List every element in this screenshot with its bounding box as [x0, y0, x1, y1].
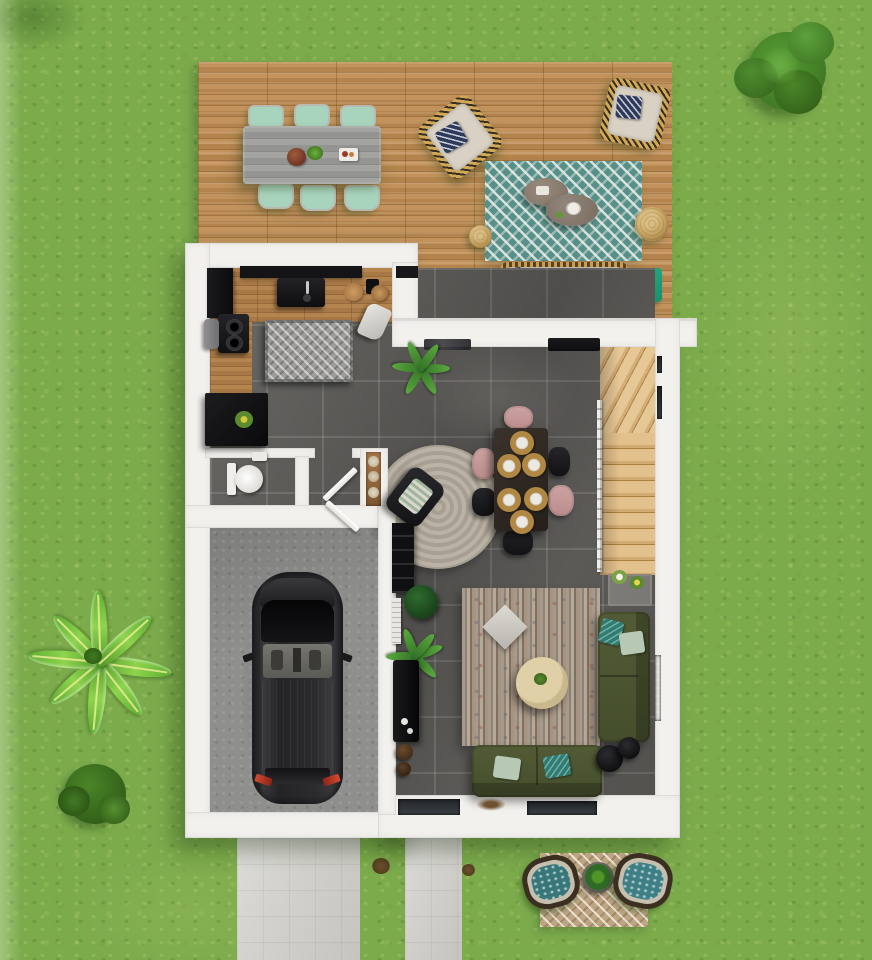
- cushion-divider: [600, 675, 638, 677]
- dining-chair-pink: [472, 448, 496, 479]
- table-deco-tray: [536, 186, 549, 195]
- round-tree: [730, 18, 848, 136]
- interior-potted-plant: [396, 346, 442, 392]
- black-side-table: [618, 737, 640, 759]
- place-setting: [522, 453, 546, 477]
- car: [252, 572, 343, 804]
- cutting-board: [344, 283, 363, 301]
- wall-top-left: [185, 243, 418, 268]
- round-coffee-table: [516, 657, 568, 709]
- black-bookshelf: [392, 523, 414, 593]
- stair-window: [657, 386, 662, 419]
- hand-basin: [252, 452, 267, 461]
- driveway: [237, 838, 360, 960]
- car-seat: [309, 650, 321, 670]
- jute-pouf-large: [635, 207, 669, 241]
- car-rear-window: [265, 768, 330, 784]
- dining-chair-pink: [504, 406, 533, 429]
- egg-chair-cushion: [620, 859, 667, 903]
- toilet-bowl: [235, 465, 263, 493]
- table-plant-deco: [534, 673, 547, 685]
- tray-food: [349, 152, 354, 157]
- place-setting: [510, 431, 534, 455]
- navy-chevron-pillow: [615, 94, 642, 119]
- olive-sofa-vertical: [598, 612, 650, 742]
- brown-pouf: [397, 762, 411, 776]
- floor-plan-scene: [0, 0, 872, 960]
- place-setting: [497, 488, 521, 512]
- staircase-shadow: [600, 345, 656, 575]
- front-walkway: [405, 838, 462, 960]
- banana-palm: [12, 582, 172, 742]
- place-setting: [524, 487, 548, 511]
- deck-dining-chair: [344, 185, 380, 211]
- gray-stool: [204, 319, 219, 349]
- car-console: [293, 648, 301, 672]
- car-windshield: [261, 600, 334, 642]
- white-cup: [407, 728, 413, 734]
- dark-plant-ball: [404, 585, 438, 619]
- burner-icon: [226, 335, 243, 351]
- place-setting: [497, 454, 521, 478]
- cushion-divider: [536, 747, 538, 785]
- burner-icon: [226, 319, 243, 335]
- front-door-glazing: [398, 799, 460, 815]
- deck-coffee-table: [546, 194, 598, 226]
- deck-dining-chair: [258, 183, 294, 209]
- teal-pillow: [542, 753, 571, 779]
- sofa-backrest: [472, 783, 602, 797]
- table-deco-sprig: [556, 212, 563, 218]
- bottom-window: [527, 801, 597, 815]
- coffee-station: [218, 314, 249, 353]
- wicker-lounge-chair: [598, 76, 672, 151]
- table-deco-plate: [566, 202, 581, 215]
- yellow-flowers: [630, 576, 644, 589]
- sideboard-with-flowers: [205, 393, 268, 446]
- car-cabin-glass: [263, 644, 332, 678]
- kitchen-island-mat: [265, 320, 353, 382]
- deck-dining-chair: [300, 185, 336, 211]
- planter-plant: [585, 864, 611, 890]
- wall-bottom-garage: [185, 812, 385, 838]
- dining-chair-black: [548, 447, 570, 476]
- decor-plate: [368, 487, 379, 498]
- dirt-spot: [462, 864, 475, 876]
- dining-chair-black: [472, 488, 496, 516]
- yellow-flowers: [235, 411, 253, 428]
- car-seat: [271, 650, 283, 670]
- round-planter: [582, 862, 614, 893]
- scattered-leaves: [476, 798, 506, 811]
- niche-shelf: [366, 452, 381, 506]
- tray-food: [342, 151, 348, 157]
- egg-chair-cushion: [528, 861, 573, 903]
- car-roof: [262, 680, 333, 772]
- place-setting: [510, 510, 534, 534]
- wall-tv-sideboard: [548, 338, 600, 351]
- tall-black-cabinet: [207, 268, 233, 318]
- decor-plate: [368, 471, 379, 482]
- mint-pillow: [493, 755, 522, 780]
- sink-drain: [303, 294, 311, 302]
- black-tv-cabinet: [393, 660, 419, 742]
- lawn-light-edge: [0, 0, 22, 960]
- decor-plate: [368, 456, 379, 467]
- kitchen-counter-right: [396, 266, 418, 278]
- mint-pillow: [619, 630, 646, 655]
- white-flowers: [612, 570, 627, 584]
- table-plant-sprig: [307, 146, 323, 160]
- right-wall-radiator: [655, 655, 661, 721]
- flower-console: [606, 568, 652, 606]
- serving-tray: [339, 148, 358, 161]
- outdoor-dining-table: [243, 126, 381, 184]
- shrub: [56, 758, 136, 834]
- wall-wc-right: [295, 456, 309, 508]
- wood-stool: [371, 285, 388, 301]
- kitchen-sink-unit: [277, 278, 325, 307]
- dirt-spot: [372, 858, 390, 874]
- centerpiece-bowl: [287, 148, 306, 166]
- armchair-throw: [397, 477, 434, 515]
- white-cup: [401, 718, 408, 725]
- dining-chair-pink: [548, 485, 574, 516]
- palm-crown: [84, 648, 102, 664]
- jute-pouf-small: [469, 225, 492, 248]
- olive-sofa-horizontal: [472, 745, 602, 797]
- kitchen-wall-counter: [240, 266, 362, 278]
- faucet-icon: [306, 281, 309, 294]
- stair-window: [657, 356, 662, 373]
- brown-pouf: [396, 744, 413, 760]
